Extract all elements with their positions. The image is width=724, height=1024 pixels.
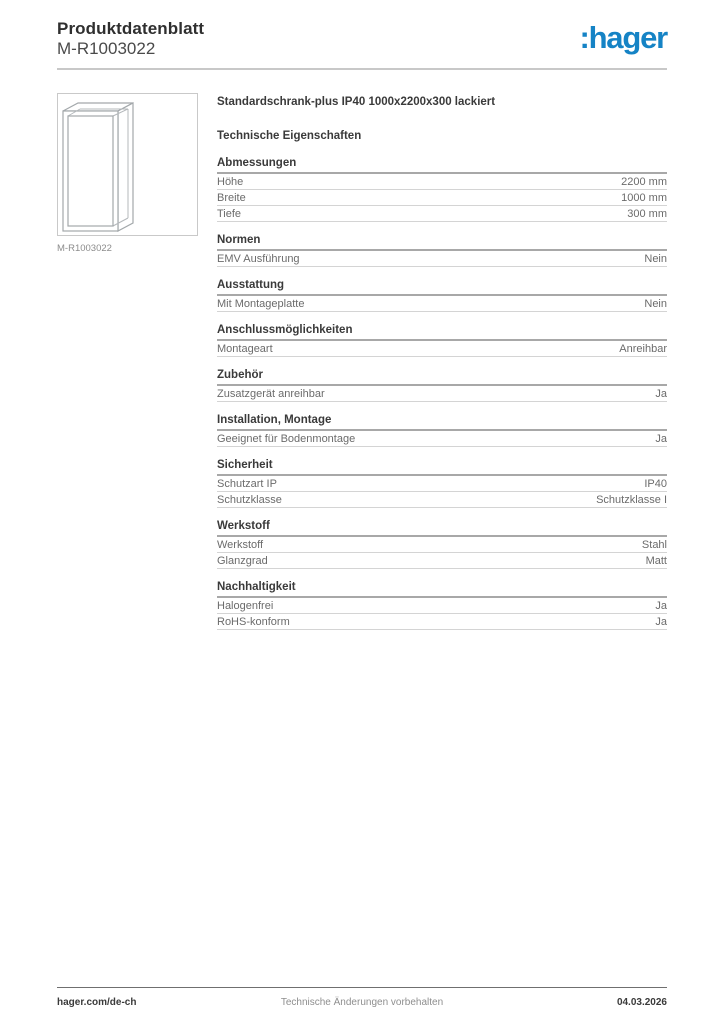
spec-row: Montageart Anreihbar <box>217 341 667 357</box>
page-title: Produktdatenblatt <box>57 19 204 39</box>
spec-row: Tiefe 300 mm <box>217 206 667 222</box>
spec-label: Mit Montageplatte <box>217 298 304 310</box>
spec-label: Zusatzgerät anreihbar <box>217 388 325 400</box>
spec-row: Breite 1000 mm <box>217 190 667 206</box>
product-title: Standardschrank-plus IP40 1000x2200x300 … <box>217 93 667 109</box>
header-divider <box>57 68 667 70</box>
spec-value: 300 mm <box>627 208 667 220</box>
hager-logo: :hager <box>579 20 667 56</box>
spec-section: Normen EMV Ausführung Nein <box>217 234 667 267</box>
footer-date: 04.03.2026 <box>617 997 667 1008</box>
spec-sections: Abmessungen Höhe 2200 mm Breite 1000 mm … <box>217 157 667 630</box>
section-title: Nachhaltigkeit <box>217 581 667 598</box>
spec-value: Nein <box>644 298 667 310</box>
spec-value: Ja <box>655 388 667 400</box>
spec-row: Zusatzgerät anreihbar Ja <box>217 386 667 402</box>
section-title: Abmessungen <box>217 157 667 174</box>
spec-row: Werkstoff Stahl <box>217 537 667 553</box>
section-title: Anschlussmöglichkeiten <box>217 324 667 341</box>
spec-value: Anreihbar <box>619 343 667 355</box>
spec-value: Nein <box>644 253 667 265</box>
spec-label: Tiefe <box>217 208 241 220</box>
spec-value: Ja <box>655 616 667 628</box>
product-reference: M-R1003022 <box>57 39 155 59</box>
spec-label: Geeignet für Bodenmontage <box>217 433 355 445</box>
tech-properties-heading: Technische Eigenschaften <box>217 130 667 143</box>
product-image-frame <box>57 93 198 236</box>
spec-value: 1000 mm <box>621 192 667 204</box>
spec-section: Ausstattung Mit Montageplatte Nein <box>217 279 667 312</box>
spec-value: Schutzklasse I <box>596 494 667 506</box>
section-title: Ausstattung <box>217 279 667 296</box>
spec-value: 2200 mm <box>621 176 667 188</box>
spec-label: Werkstoff <box>217 539 263 551</box>
section-title: Sicherheit <box>217 459 667 476</box>
spec-value: Matt <box>646 555 667 567</box>
spec-section: Installation, Montage Geeignet für Boden… <box>217 414 667 447</box>
spec-row: Schutzklasse Schutzklasse I <box>217 492 667 508</box>
spec-value: Ja <box>655 433 667 445</box>
spec-value: Stahl <box>642 539 667 551</box>
spec-label: RoHS-konform <box>217 616 290 628</box>
section-title: Zubehör <box>217 369 667 386</box>
spec-row: Schutzart IP IP40 <box>217 476 667 492</box>
spec-section: Abmessungen Höhe 2200 mm Breite 1000 mm … <box>217 157 667 222</box>
spec-row: Halogenfrei Ja <box>217 598 667 614</box>
footer-divider <box>57 987 667 988</box>
spec-row: Mit Montageplatte Nein <box>217 296 667 312</box>
spec-label: EMV Ausführung <box>217 253 300 265</box>
spec-row: Höhe 2200 mm <box>217 174 667 190</box>
spec-row: Geeignet für Bodenmontage Ja <box>217 431 667 447</box>
spec-row: EMV Ausführung Nein <box>217 251 667 267</box>
spec-row: Glanzgrad Matt <box>217 553 667 569</box>
section-title: Normen <box>217 234 667 251</box>
spec-section: Werkstoff Werkstoff Stahl Glanzgrad Matt <box>217 520 667 569</box>
spec-label: Glanzgrad <box>217 555 268 567</box>
spec-row: RoHS-konform Ja <box>217 614 667 630</box>
spec-section: Sicherheit Schutzart IP IP40 Schutzklass… <box>217 459 667 508</box>
spec-label: Schutzklasse <box>217 494 282 506</box>
spec-label: Montageart <box>217 343 273 355</box>
footer-disclaimer: Technische Änderungen vorbehalten <box>0 997 724 1008</box>
spec-section: Anschlussmöglichkeiten Montageart Anreih… <box>217 324 667 357</box>
spec-label: Breite <box>217 192 246 204</box>
spec-section: Zubehör Zusatzgerät anreihbar Ja <box>217 369 667 402</box>
spec-content: Standardschrank-plus IP40 1000x2200x300 … <box>217 93 667 630</box>
spec-value: Ja <box>655 600 667 612</box>
spec-label: Höhe <box>217 176 243 188</box>
image-caption: M-R1003022 <box>57 243 112 254</box>
cabinet-wireframe-image <box>58 94 197 235</box>
datasheet-page: Produktdatenblatt M-R1003022 :hager M-R1… <box>0 0 724 1024</box>
spec-section: Nachhaltigkeit Halogenfrei Ja RoHS-konfo… <box>217 581 667 630</box>
spec-label: Schutzart IP <box>217 478 277 490</box>
section-title: Installation, Montage <box>217 414 667 431</box>
spec-label: Halogenfrei <box>217 600 273 612</box>
section-title: Werkstoff <box>217 520 667 537</box>
spec-value: IP40 <box>644 478 667 490</box>
